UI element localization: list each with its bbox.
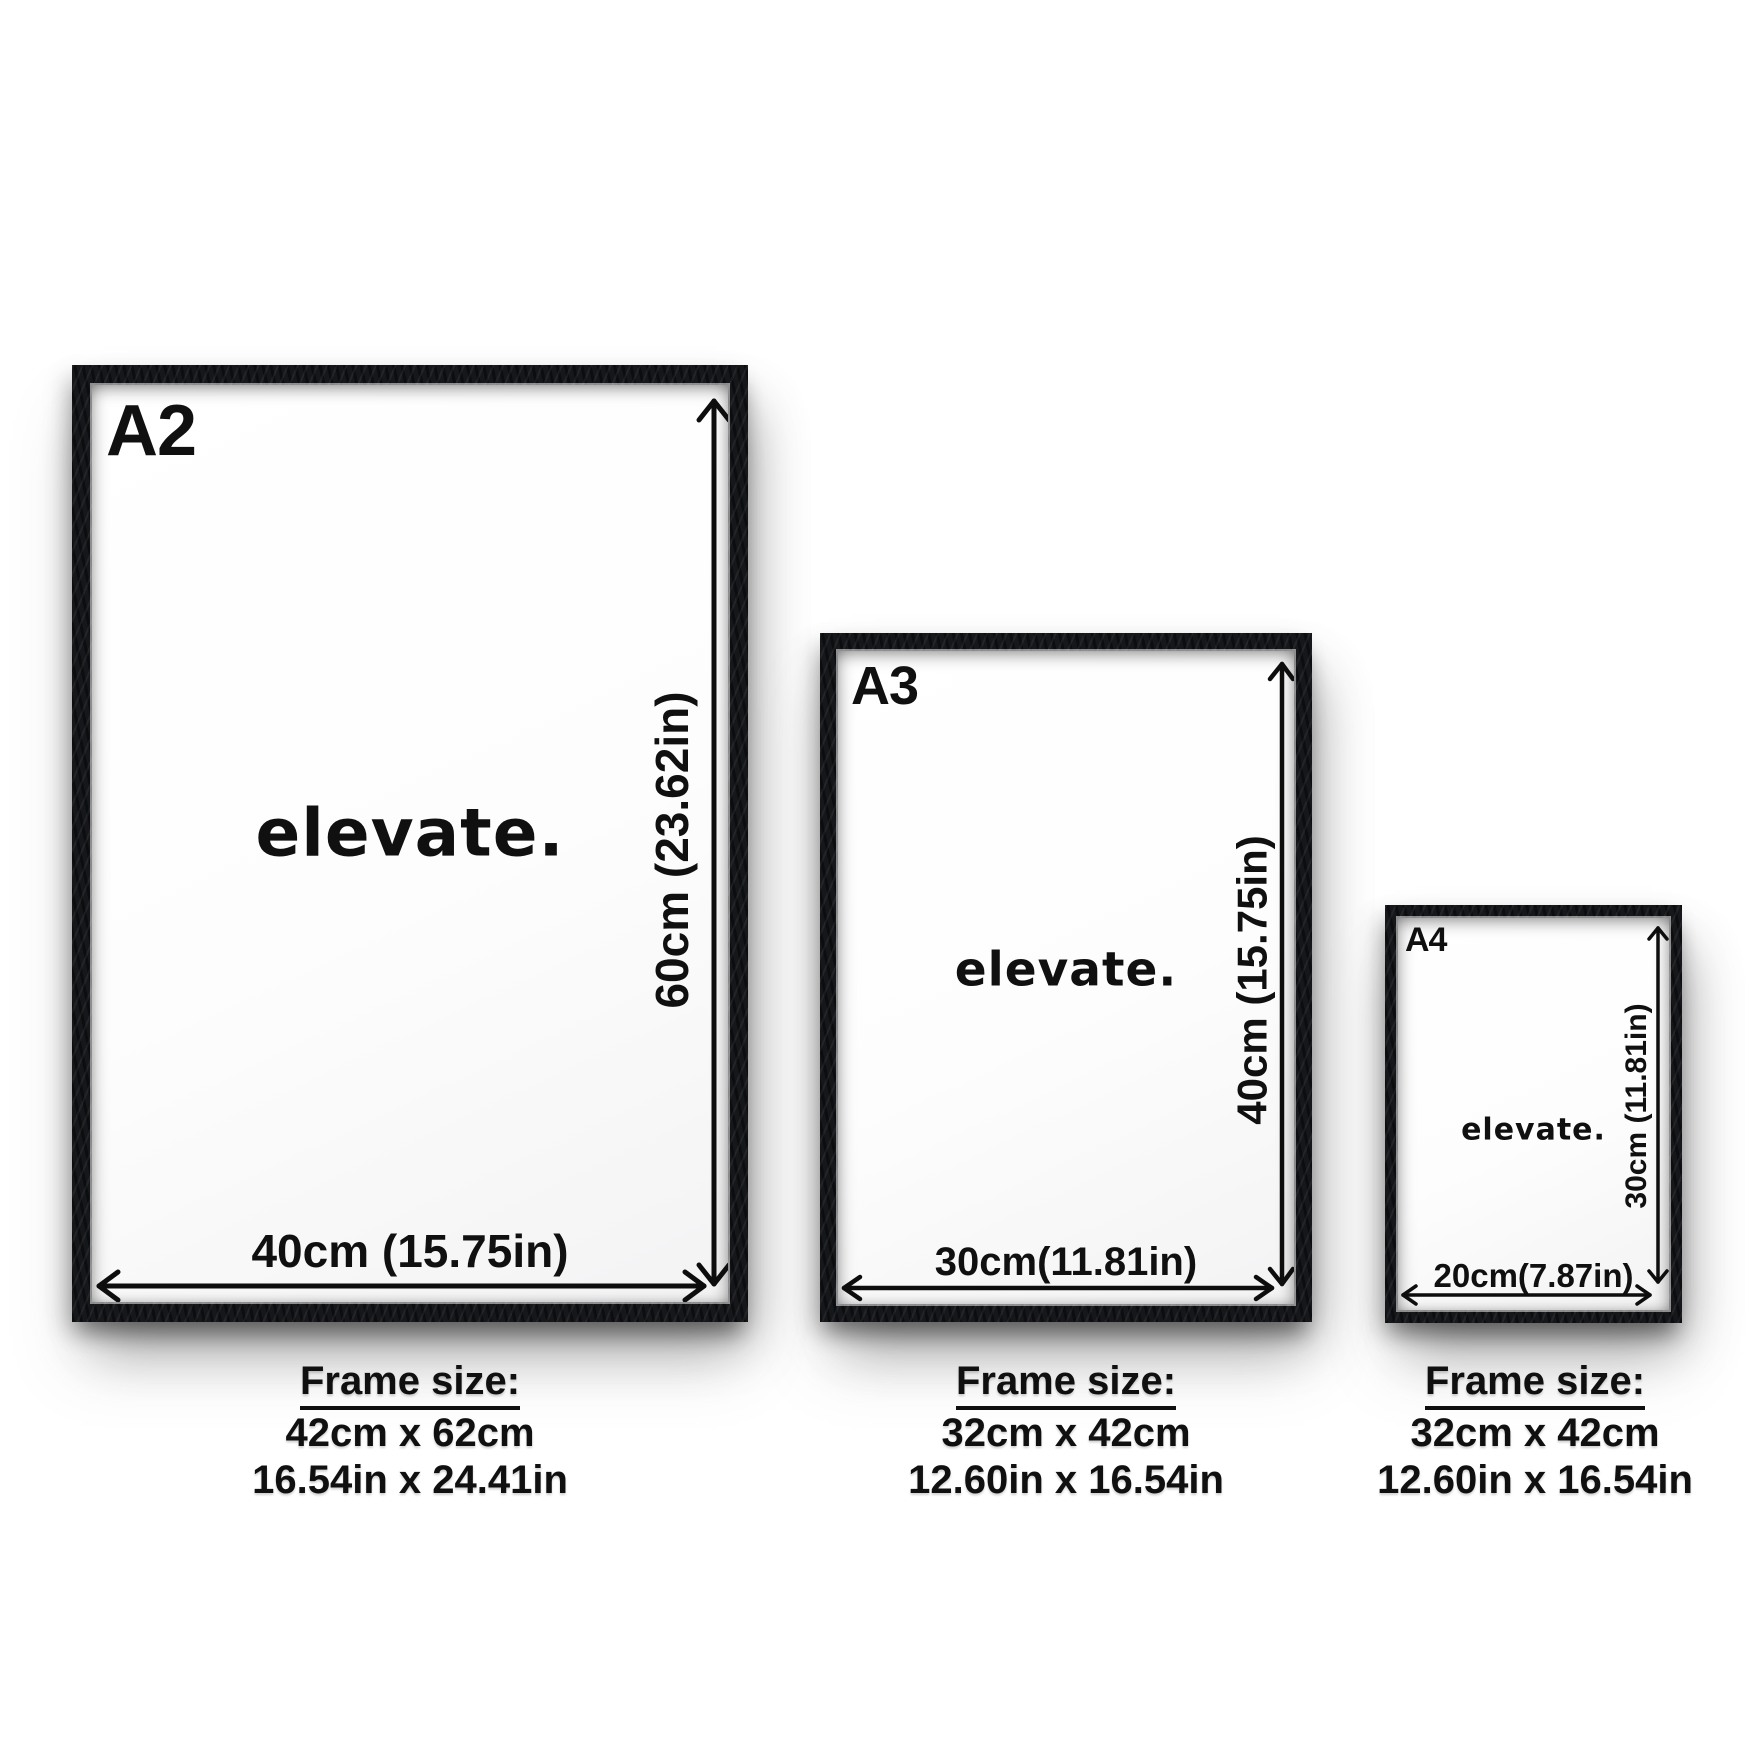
caption-title-a4: Frame size:: [1340, 1358, 1730, 1410]
frame-a2-print: A2 elevate. 60cm (23.62in) 40cm (15.75in…: [92, 385, 728, 1302]
dimension-arrows-a3: [838, 651, 1294, 1304]
size-guide-image: A2 elevate. 60cm (23.62in) 40cm (15.75in…: [0, 0, 1750, 1750]
dimension-arrows-a2: [92, 385, 728, 1302]
caption-title-a2: Frame size:: [72, 1358, 748, 1410]
frame-size-caption-a3: Frame size: 32cm x 42cm 12.60in x 16.54i…: [820, 1358, 1312, 1504]
caption-cm-a4: 32cm x 42cm: [1340, 1410, 1730, 1457]
caption-cm-a3: 32cm x 42cm: [820, 1410, 1312, 1457]
caption-title-a3: Frame size:: [820, 1358, 1312, 1410]
frame-a4-print: A4 elevate. 30cm (11.81in) 20cm(7.87in): [1398, 918, 1669, 1310]
frame-a2: A2 elevate. 60cm (23.62in) 40cm (15.75in…: [72, 365, 748, 1322]
caption-cm-a2: 42cm x 62cm: [72, 1410, 748, 1457]
frame-a3-print: A3 elevate. 40cm (15.75in) 30cm(11.81in): [838, 651, 1294, 1304]
caption-in-a2: 16.54in x 24.41in: [72, 1457, 748, 1504]
frame-a3: A3 elevate. 40cm (15.75in) 30cm(11.81in): [820, 633, 1312, 1322]
caption-in-a4: 12.60in x 16.54in: [1340, 1457, 1730, 1504]
frame-size-caption-a4: Frame size: 32cm x 42cm 12.60in x 16.54i…: [1340, 1358, 1730, 1504]
dimension-arrows-a4: [1398, 918, 1669, 1310]
frame-size-caption-a2: Frame size: 42cm x 62cm 16.54in x 24.41i…: [72, 1358, 748, 1504]
caption-in-a3: 12.60in x 16.54in: [820, 1457, 1312, 1504]
frame-a4: A4 elevate. 30cm (11.81in) 20cm(7.87in): [1385, 905, 1682, 1323]
